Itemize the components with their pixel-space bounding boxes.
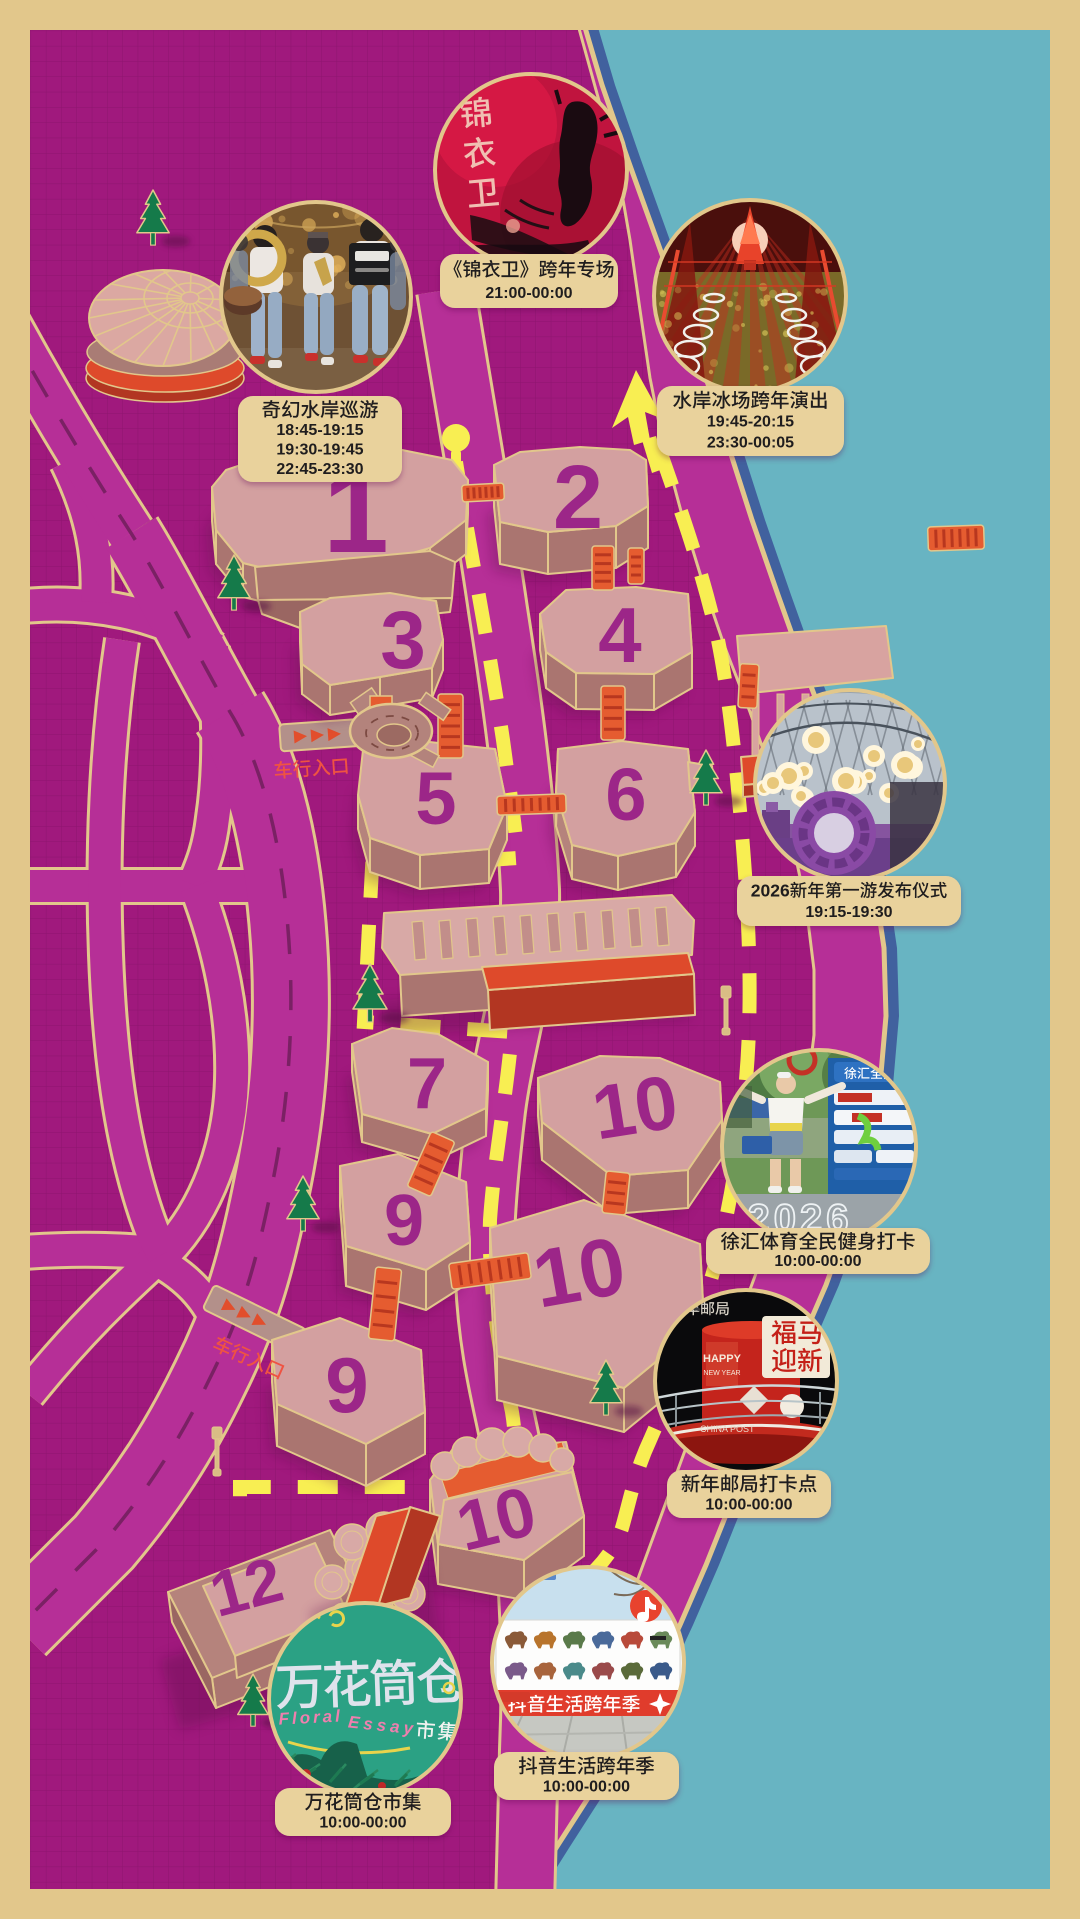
svg-text:HAPPY: HAPPY <box>703 1353 742 1365</box>
svg-text:CHINA POST: CHINA POST <box>700 1424 755 1434</box>
svg-text:6: 6 <box>605 753 646 836</box>
svg-text:10:00-00:00: 10:00-00:00 <box>774 1253 861 1270</box>
svg-text:22:45-23:30: 22:45-23:30 <box>276 461 363 478</box>
svg-text:7: 7 <box>407 1044 447 1124</box>
svg-text:19:30-19:45: 19:30-19:45 <box>276 441 363 458</box>
svg-text:23:30-00:05: 23:30-00:05 <box>707 434 794 451</box>
svg-text:Floral: Floral <box>278 1706 343 1728</box>
svg-text:18:45-19:15: 18:45-19:15 <box>276 422 363 439</box>
svg-text:9: 9 <box>325 1341 368 1429</box>
svg-text:2026: 2026 <box>751 881 790 901</box>
svg-text:2: 2 <box>553 448 603 548</box>
svg-text:19:45-20:15: 19:45-20:15 <box>707 414 794 431</box>
svg-text:10:00-00:00: 10:00-00:00 <box>319 1815 406 1832</box>
svg-text:10:00-00:00: 10:00-00:00 <box>705 1497 792 1514</box>
svg-text:10: 10 <box>526 1220 632 1325</box>
svg-text:10: 10 <box>587 1059 684 1156</box>
svg-text:21:00-00:00: 21:00-00:00 <box>485 285 572 302</box>
svg-text:3: 3 <box>380 595 426 686</box>
svg-text:19:15-19:30: 19:15-19:30 <box>805 904 892 921</box>
svg-text:4: 4 <box>598 591 641 679</box>
svg-text:10:00-00:00: 10:00-00:00 <box>543 1779 630 1796</box>
svg-text:9: 9 <box>384 1181 424 1261</box>
svg-text:5: 5 <box>415 757 456 840</box>
svg-text:NEW YEAR: NEW YEAR <box>703 1370 740 1377</box>
